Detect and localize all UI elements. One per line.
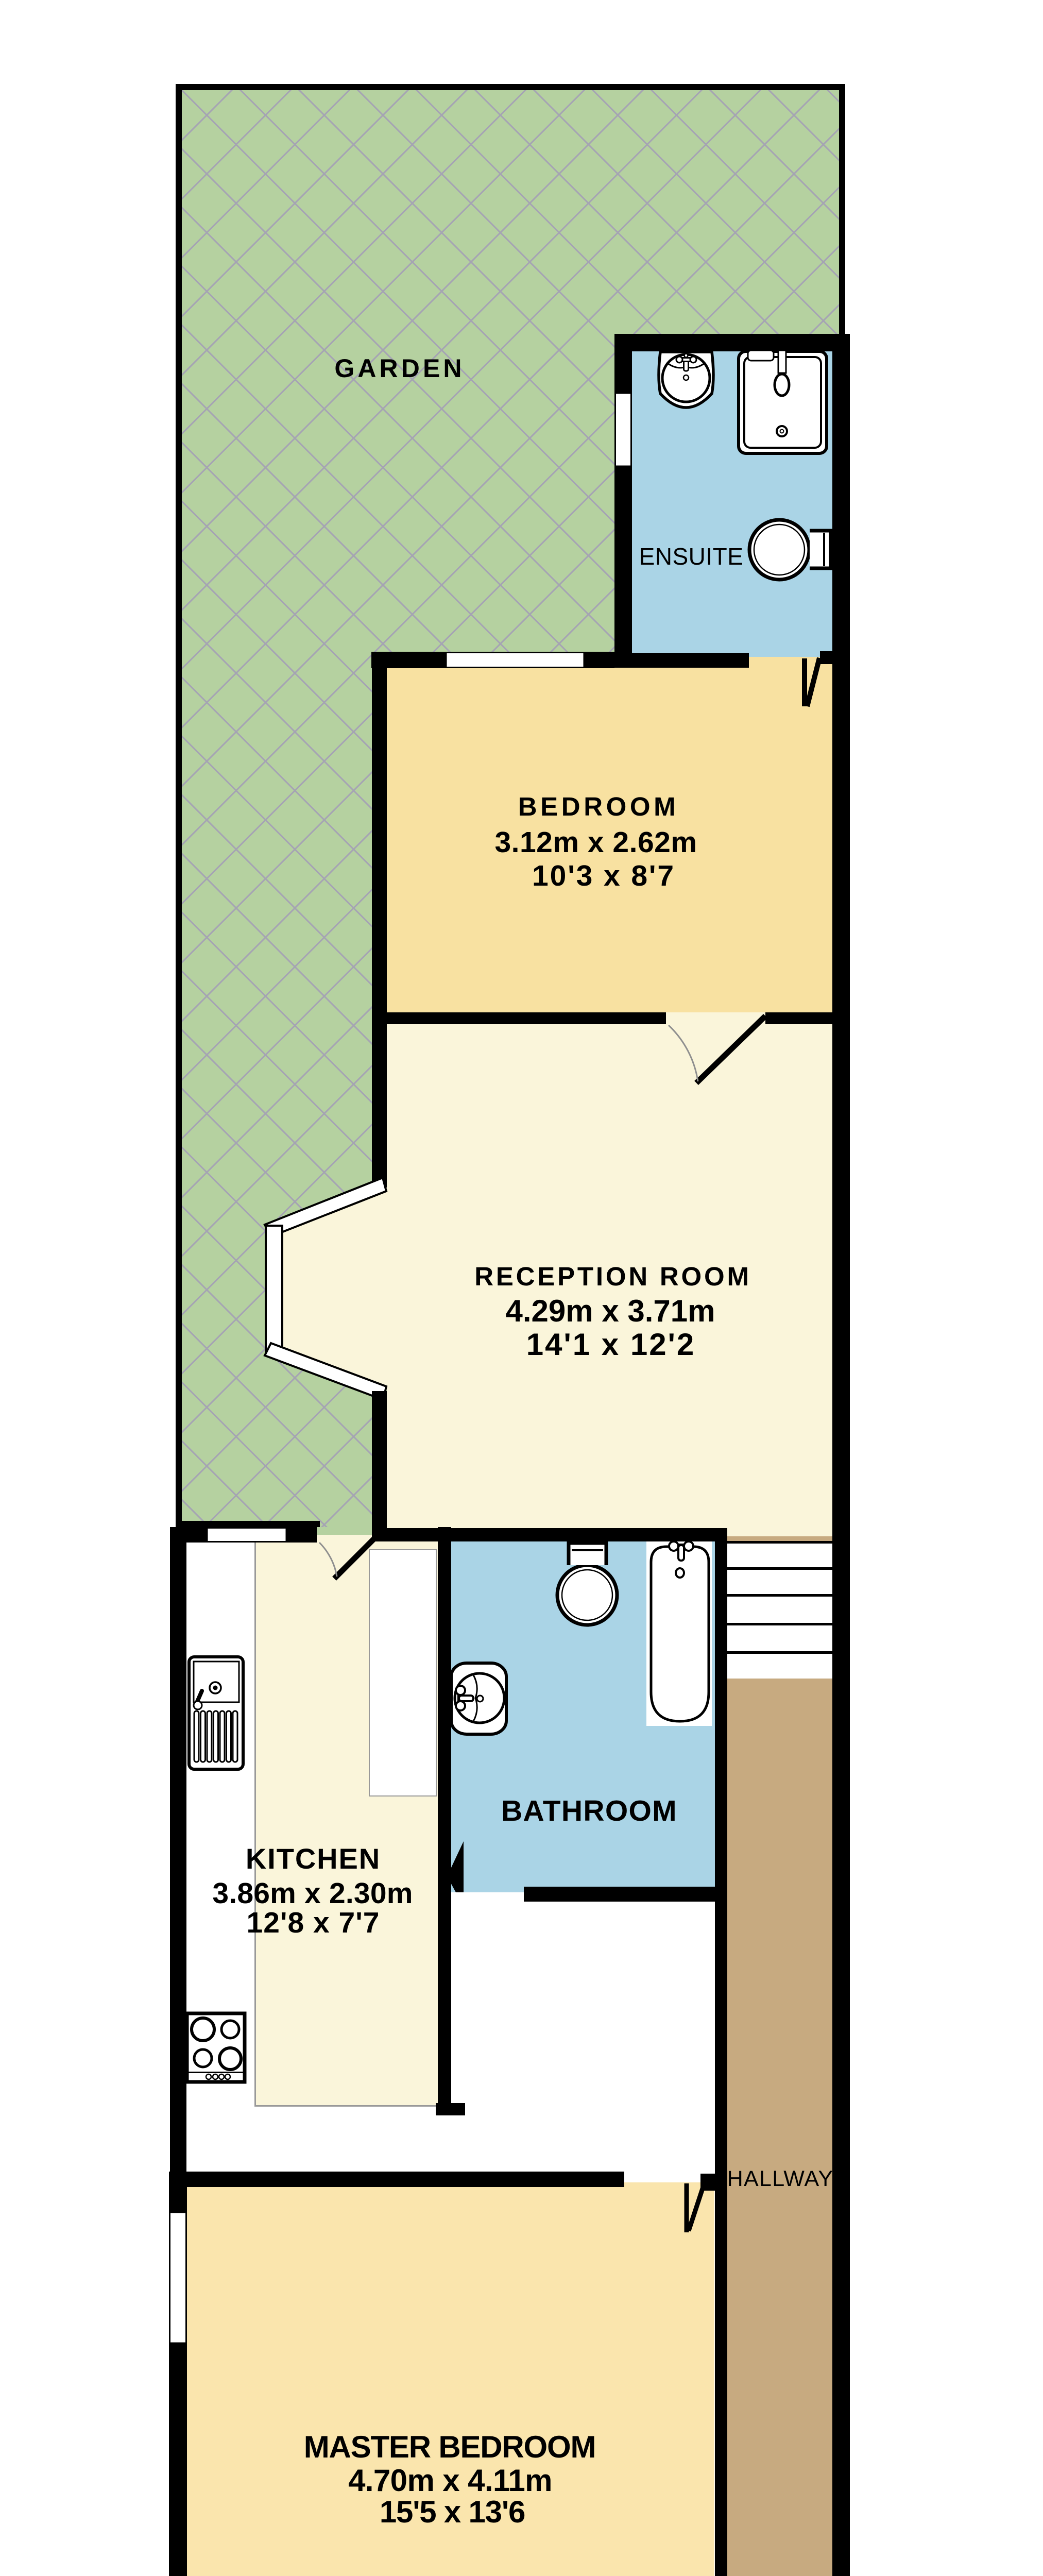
svg-text:12'8 x 7'7: 12'8 x 7'7: [247, 1906, 380, 1939]
svg-text:BATHROOM: BATHROOM: [501, 1794, 677, 1827]
svg-text:GARDEN: GARDEN: [334, 354, 465, 383]
svg-text:BEDROOM: BEDROOM: [518, 792, 679, 821]
svg-text:3.86m x 2.30m: 3.86m x 2.30m: [212, 1877, 413, 1910]
svg-text:MASTER BEDROOM: MASTER BEDROOM: [304, 2430, 596, 2464]
svg-text:RECEPTION ROOM: RECEPTION ROOM: [474, 1262, 751, 1291]
svg-text:HALLWAY: HALLWAY: [727, 2166, 834, 2191]
svg-text:3.12m x 2.62m: 3.12m x 2.62m: [494, 826, 697, 859]
svg-text:10'3 x 8'7: 10'3 x 8'7: [532, 859, 675, 892]
svg-text:4.29m x 3.71m: 4.29m x 3.71m: [506, 1294, 715, 1328]
svg-text:15'5 x 13'6: 15'5 x 13'6: [380, 2495, 525, 2529]
svg-text:KITCHEN: KITCHEN: [246, 1842, 381, 1875]
svg-text:4.70m x 4.11m: 4.70m x 4.11m: [348, 2463, 552, 2498]
svg-text:ENSUITE: ENSUITE: [639, 543, 744, 570]
svg-text:14'1 x 12'2: 14'1 x 12'2: [526, 1327, 695, 1362]
